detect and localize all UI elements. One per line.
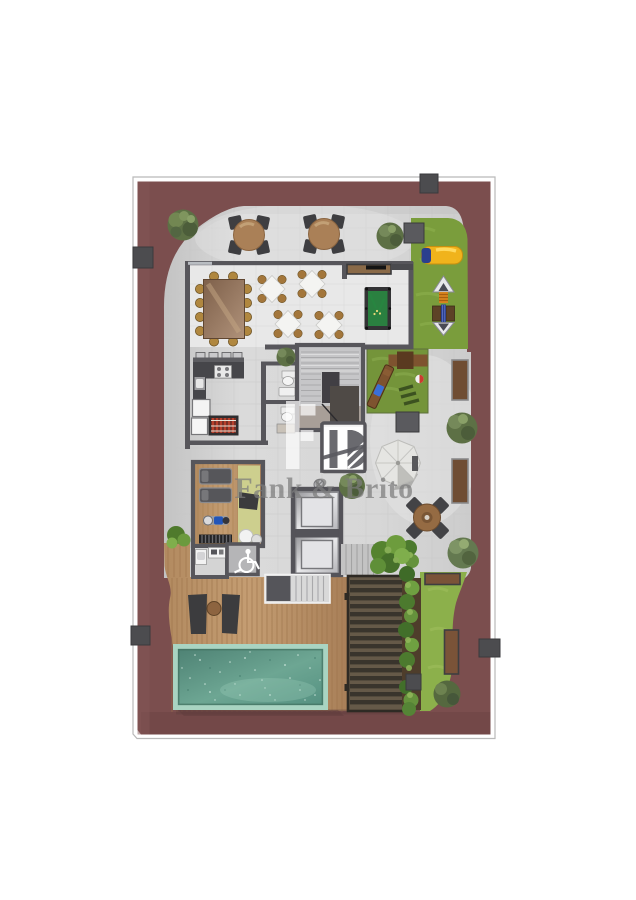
svg-text:Fank & Brito: Fank & Brito [234,472,413,505]
